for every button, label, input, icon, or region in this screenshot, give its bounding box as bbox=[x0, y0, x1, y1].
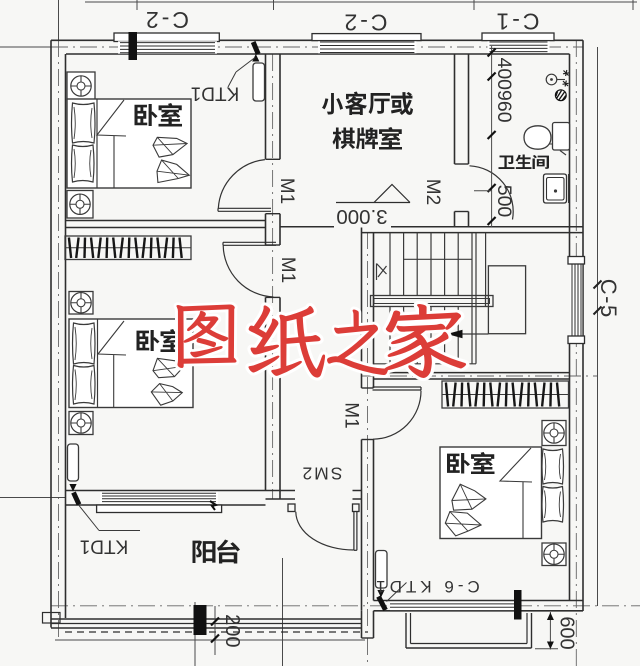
svg-text:C-2: C-2 bbox=[143, 7, 189, 33]
svg-text:400960: 400960 bbox=[493, 57, 515, 122]
svg-text:600: 600 bbox=[556, 616, 578, 649]
svg-text:KTD1: KTD1 bbox=[191, 83, 240, 104]
svg-text:C-2: C-2 bbox=[341, 10, 387, 36]
svg-text:3.000: 3.000 bbox=[336, 205, 387, 228]
svg-text:C-1: C-1 bbox=[493, 9, 539, 35]
svg-text:M1: M1 bbox=[276, 178, 297, 204]
svg-text:C-5: C-5 bbox=[596, 279, 621, 319]
svg-text:C-6 KTD1: C-6 KTD1 bbox=[372, 577, 480, 596]
svg-text:KTD1: KTD1 bbox=[80, 536, 129, 557]
svg-text:M1: M1 bbox=[277, 257, 298, 283]
svg-text:SM2: SM2 bbox=[301, 464, 343, 484]
svg-text:M2: M2 bbox=[422, 179, 443, 205]
svg-text:500: 500 bbox=[493, 185, 515, 218]
svg-text:200: 200 bbox=[221, 614, 243, 647]
svg-text:M1: M1 bbox=[341, 402, 362, 428]
